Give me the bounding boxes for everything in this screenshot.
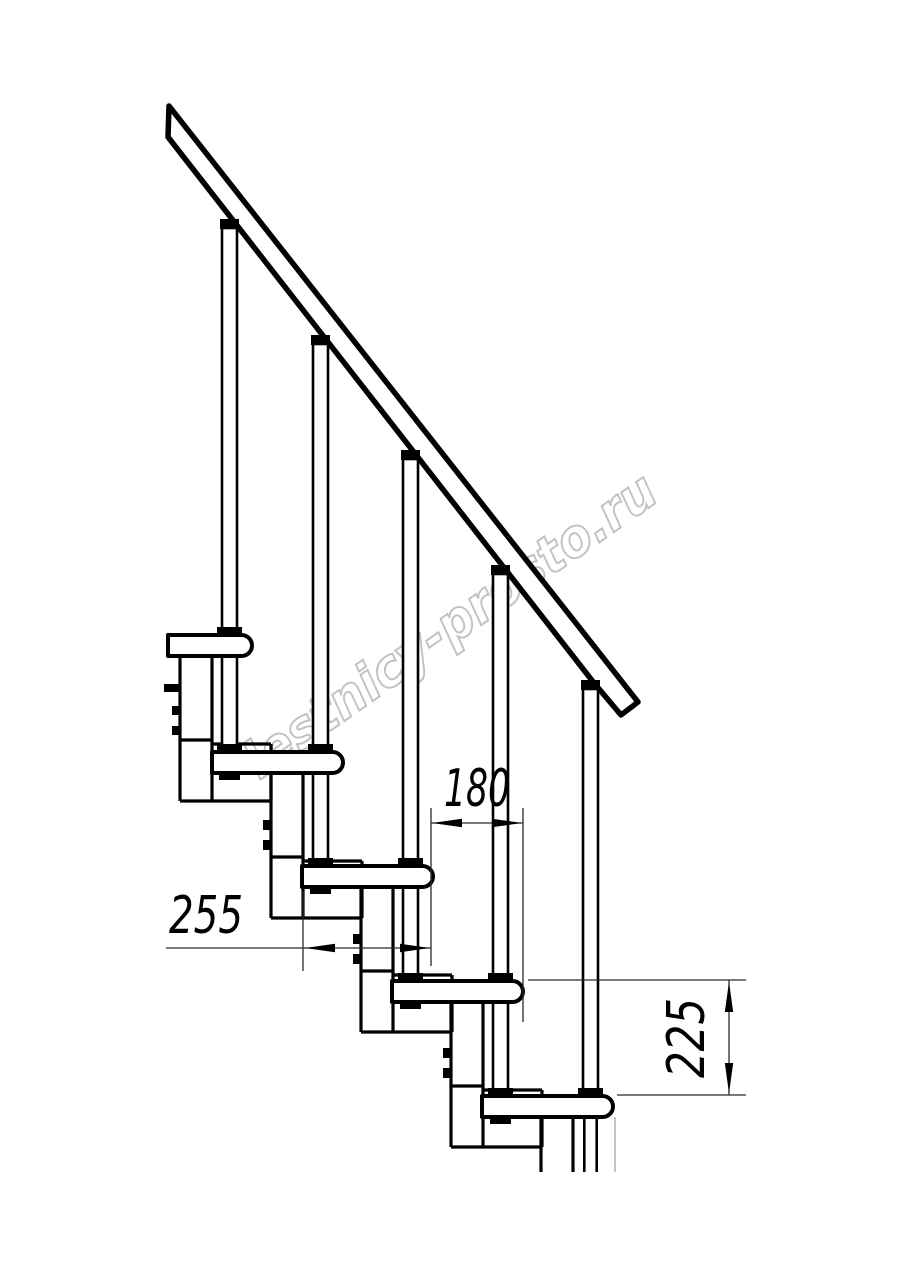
tread-4 <box>392 981 523 1002</box>
bolt-icon <box>263 840 272 850</box>
dimension-tread-depth: 255 <box>166 886 431 971</box>
nut-icon <box>217 744 242 752</box>
baluster-5-lower <box>584 1117 596 1172</box>
bolt-icon <box>443 1048 452 1058</box>
tread-1 <box>168 635 252 656</box>
baluster-2 <box>313 344 328 866</box>
arrow-up-icon <box>725 982 733 1012</box>
tread-5 <box>482 1096 613 1117</box>
bolt-icon <box>172 706 181 715</box>
nut-icon <box>578 1088 603 1096</box>
bolt-icon <box>353 954 362 964</box>
bolt-icon <box>172 726 181 735</box>
dimension-label-rise: 225 <box>657 998 717 1078</box>
dimension-label-run: 180 <box>444 759 510 819</box>
nut-icon <box>488 973 513 981</box>
support-module-5-partial <box>541 1117 573 1172</box>
balusters <box>222 228 598 1096</box>
tread-3 <box>302 866 433 887</box>
bolt-icon <box>443 1068 452 1078</box>
watermark: lestnicy-prosto.ru <box>232 461 668 791</box>
nut-icon <box>217 627 242 635</box>
baluster-cap-icon <box>401 450 420 460</box>
nut-icon <box>219 773 240 780</box>
staircase-drawing-canvas: lestnicy-prosto.ru <box>0 0 914 1280</box>
tread-2 <box>212 752 343 773</box>
arrow-left-icon <box>305 944 335 952</box>
dimension-label-tread-depth: 255 <box>169 886 243 946</box>
technical-drawing-page: lestnicy-prosto.ru <box>0 0 914 1280</box>
baluster-cap-icon <box>491 565 510 575</box>
baluster-5 <box>583 689 598 1096</box>
nut-icon <box>400 1002 421 1009</box>
lower-cutoff-structure <box>541 1117 615 1172</box>
dimension-rise: 225 <box>528 980 746 1095</box>
nut-icon <box>490 1117 511 1124</box>
watermark-text: lestnicy-prosto.ru <box>232 461 668 791</box>
nut-icon <box>488 1088 513 1096</box>
baluster-cap-icon <box>581 680 600 690</box>
baluster-4 <box>493 574 508 1096</box>
nut-icon <box>308 858 333 866</box>
baluster-cap-icon <box>311 335 330 345</box>
nut-icon <box>398 858 423 866</box>
nut-icon <box>308 744 333 752</box>
baluster-3 <box>403 459 418 981</box>
bolt-icon <box>263 820 272 830</box>
baluster-1 <box>222 228 237 752</box>
baluster-cap-icon <box>220 219 239 229</box>
bolt-icon <box>164 684 180 692</box>
nut-icon <box>398 973 423 981</box>
arrow-left-icon <box>432 819 462 827</box>
arrow-down-icon <box>725 1063 733 1093</box>
nut-icon <box>310 887 331 894</box>
bolt-icon <box>353 934 362 944</box>
